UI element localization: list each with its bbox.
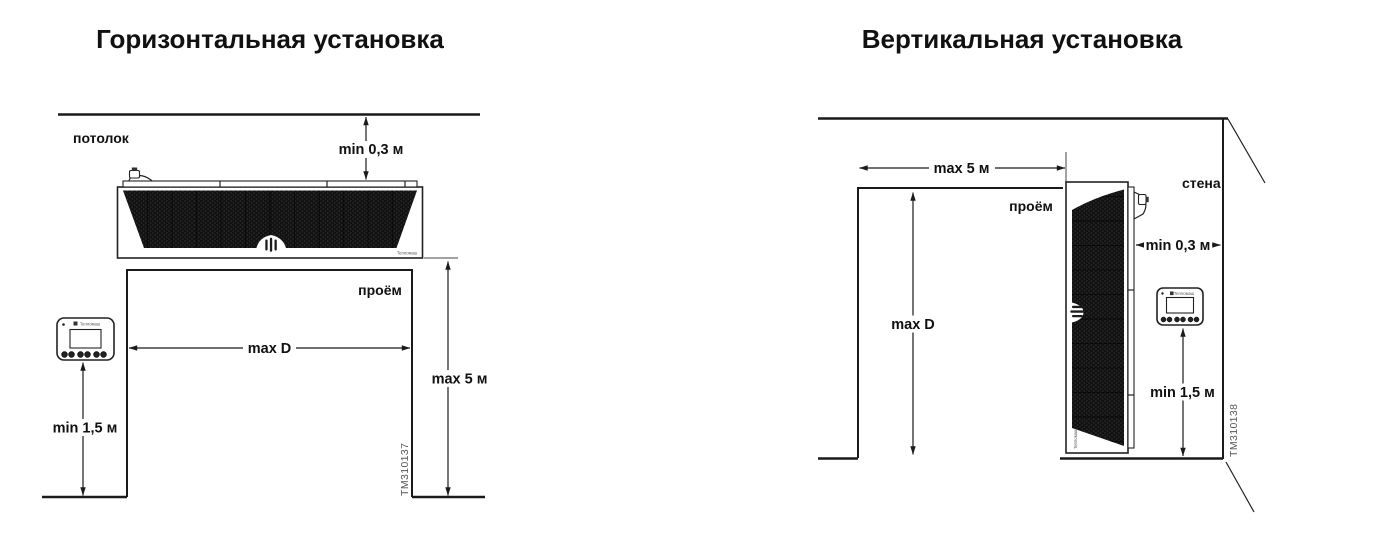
- dim-opening-width-label: max 5 м: [934, 161, 990, 177]
- dim-wall-clearance-label: min 0,3 м: [1146, 238, 1211, 254]
- air-curtain-unit-vertical: Тепломаш: [1066, 182, 1149, 453]
- panel-brand-label: Тепломаш: [80, 321, 101, 326]
- mounting-bolt: [1139, 195, 1147, 205]
- unit-brand-label: Тепломаш: [1073, 428, 1078, 449]
- remote-control-panel: Тепломаш: [1157, 288, 1203, 325]
- mounting-bolt: [130, 171, 140, 179]
- unit-brand-label: Тепломаш: [397, 251, 418, 256]
- remote-control-panel: Тепломаш: [57, 318, 114, 360]
- fan-logo-icon: [265, 238, 277, 252]
- wall-hatch-bottom: [1226, 462, 1254, 512]
- panel-logo-icon: [74, 322, 78, 326]
- ceiling-label: потолок: [73, 130, 130, 146]
- dim-opening-height-label: max 5 м: [432, 372, 488, 388]
- mounting-bolt-cap: [132, 168, 137, 171]
- dim-wall-clearance: min 0,3 м: [1136, 237, 1221, 254]
- page: Горизонтальная установка потолок Теплома…: [0, 0, 1380, 537]
- panel-display: [1167, 298, 1194, 314]
- dim-opening-width: max D: [129, 340, 410, 358]
- right-diagram-title: Вертикальная установка: [862, 24, 1183, 54]
- panel-brand-label: Тепломаш: [1174, 291, 1195, 296]
- dim-opening-width-label: max D: [248, 341, 292, 357]
- panel-led: [62, 323, 65, 326]
- dim-ceiling-clearance: min 0,3 м: [336, 117, 406, 180]
- left-opening-label: проём: [358, 282, 402, 298]
- fan-logo-icon: [1070, 306, 1084, 318]
- vertical-installation-diagram: Вертикальная установка стена проём max 5…: [818, 24, 1265, 512]
- dim-opening-height: max 5 м: [424, 258, 490, 496]
- doorway-opening: [127, 270, 412, 497]
- wall-hatch-top: [1228, 119, 1265, 183]
- horizontal-installation-diagram: Горизонтальная установка потолок Теплома…: [42, 24, 490, 497]
- wall-label: стена: [1182, 175, 1221, 191]
- panel-led: [1161, 292, 1163, 294]
- right-figure-id: TM310138: [1228, 404, 1240, 457]
- dim-panel-height-label: min 1,5 м: [1150, 385, 1215, 401]
- left-diagram-title: Горизонтальная установка: [96, 24, 444, 54]
- dim-opening-width: max 5 м: [860, 160, 1066, 178]
- unit-side-strip: [1128, 187, 1134, 448]
- dim-opening-height: max D: [886, 193, 940, 455]
- installation-diagrams: Горизонтальная установка потолок Теплома…: [0, 0, 1380, 537]
- dim-opening-height-label: max D: [891, 317, 935, 333]
- left-figure-id: TM310137: [399, 443, 411, 496]
- mounting-bolt-cap: [1146, 197, 1149, 202]
- dim-panel-height: min 1,5 м: [1149, 329, 1216, 457]
- dim-ceiling-clearance-label: min 0,3 м: [339, 142, 404, 158]
- dim-panel-height: min 1,5 м: [50, 363, 120, 496]
- panel-display: [70, 330, 101, 349]
- unit-top-strip: [123, 181, 417, 187]
- right-opening-label: проём: [1009, 198, 1053, 214]
- air-curtain-unit-horizontal: Тепломаш: [118, 168, 423, 259]
- dim-panel-height-label: min 1,5 м: [53, 421, 118, 437]
